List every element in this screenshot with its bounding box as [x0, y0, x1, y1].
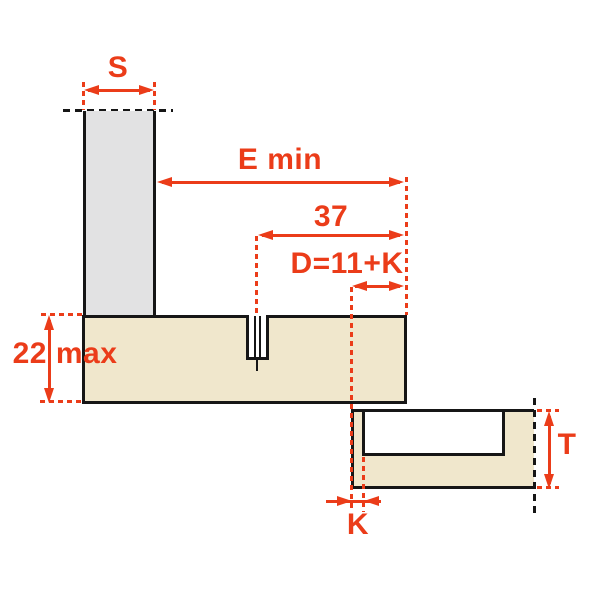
- cabinet-bottom-panel: [82, 315, 407, 404]
- door-thickness-arrowhead-up: [544, 411, 554, 426]
- screw-pilot-line-right: [259, 316, 261, 358]
- screw-centerline-extension: [256, 358, 258, 371]
- d-arrowhead-left: [352, 281, 367, 291]
- k-arrowhead-inward-right: [337, 496, 352, 506]
- d-formula-label: D=11+K: [290, 249, 403, 279]
- board-edge-extension-line: [405, 177, 408, 315]
- dim-37-arrowhead-right: [389, 230, 404, 240]
- d-arrowhead-right: [389, 281, 404, 291]
- screw-hole-slot: [246, 315, 269, 360]
- dim-37-arrowhead-left: [258, 230, 273, 240]
- k-arrowhead-inward-left: [364, 496, 379, 506]
- e-min-arrowhead-left: [157, 177, 172, 187]
- door-face-extension-line: [350, 287, 353, 512]
- board-thickness-dimension-line: [48, 320, 51, 397]
- board-thickness-arrowhead-down: [44, 388, 54, 403]
- door-continuation-dashed-line: [533, 398, 536, 516]
- screw-pilot-line-left: [254, 316, 256, 358]
- dim-37-label: 37: [314, 202, 348, 232]
- door-thickness-label: T: [558, 430, 577, 460]
- e-min-dimension-label: E min: [238, 145, 322, 175]
- cabinet-side-panel: [83, 111, 156, 316]
- k-dimension-label: K: [347, 510, 369, 540]
- hinge-cup-recess: [362, 412, 505, 456]
- s-arrowhead-right: [139, 85, 154, 95]
- e-min-arrowhead-right: [389, 177, 404, 187]
- board-thickness-label: 22 max: [13, 339, 118, 369]
- dim-37-dimension-line: [262, 234, 400, 237]
- e-min-dimension-line: [162, 181, 400, 184]
- door-thickness-arrowhead-down: [544, 474, 554, 489]
- s-arrowhead-left: [84, 85, 99, 95]
- board-thickness-arrowhead-up: [44, 315, 54, 330]
- screw-centerline-dashed: [255, 236, 258, 315]
- hinge-dimension-diagram: S E min 37 D=11+K 22 max T K: [0, 0, 600, 600]
- s-dimension-label: S: [108, 53, 129, 83]
